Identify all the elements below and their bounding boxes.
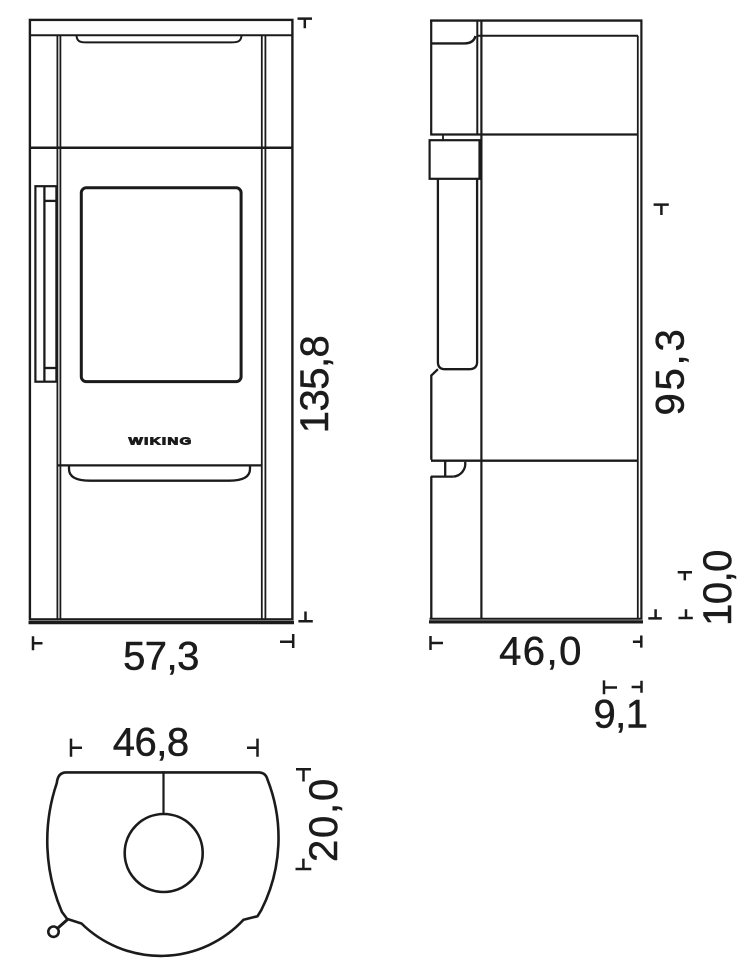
svg-text:46,8: 46,8 [113,721,189,765]
svg-text:20,0: 20,0 [302,777,346,862]
svg-text:95,3: 95,3 [649,326,693,415]
svg-text:57,3: 57,3 [123,634,199,678]
svg-text:9,1: 9,1 [593,693,647,737]
svg-text:10,0: 10,0 [696,550,740,626]
svg-text:135,8: 135,8 [293,336,337,434]
svg-text:WIKING: WIKING [129,436,193,448]
svg-text:46,0: 46,0 [499,630,583,674]
